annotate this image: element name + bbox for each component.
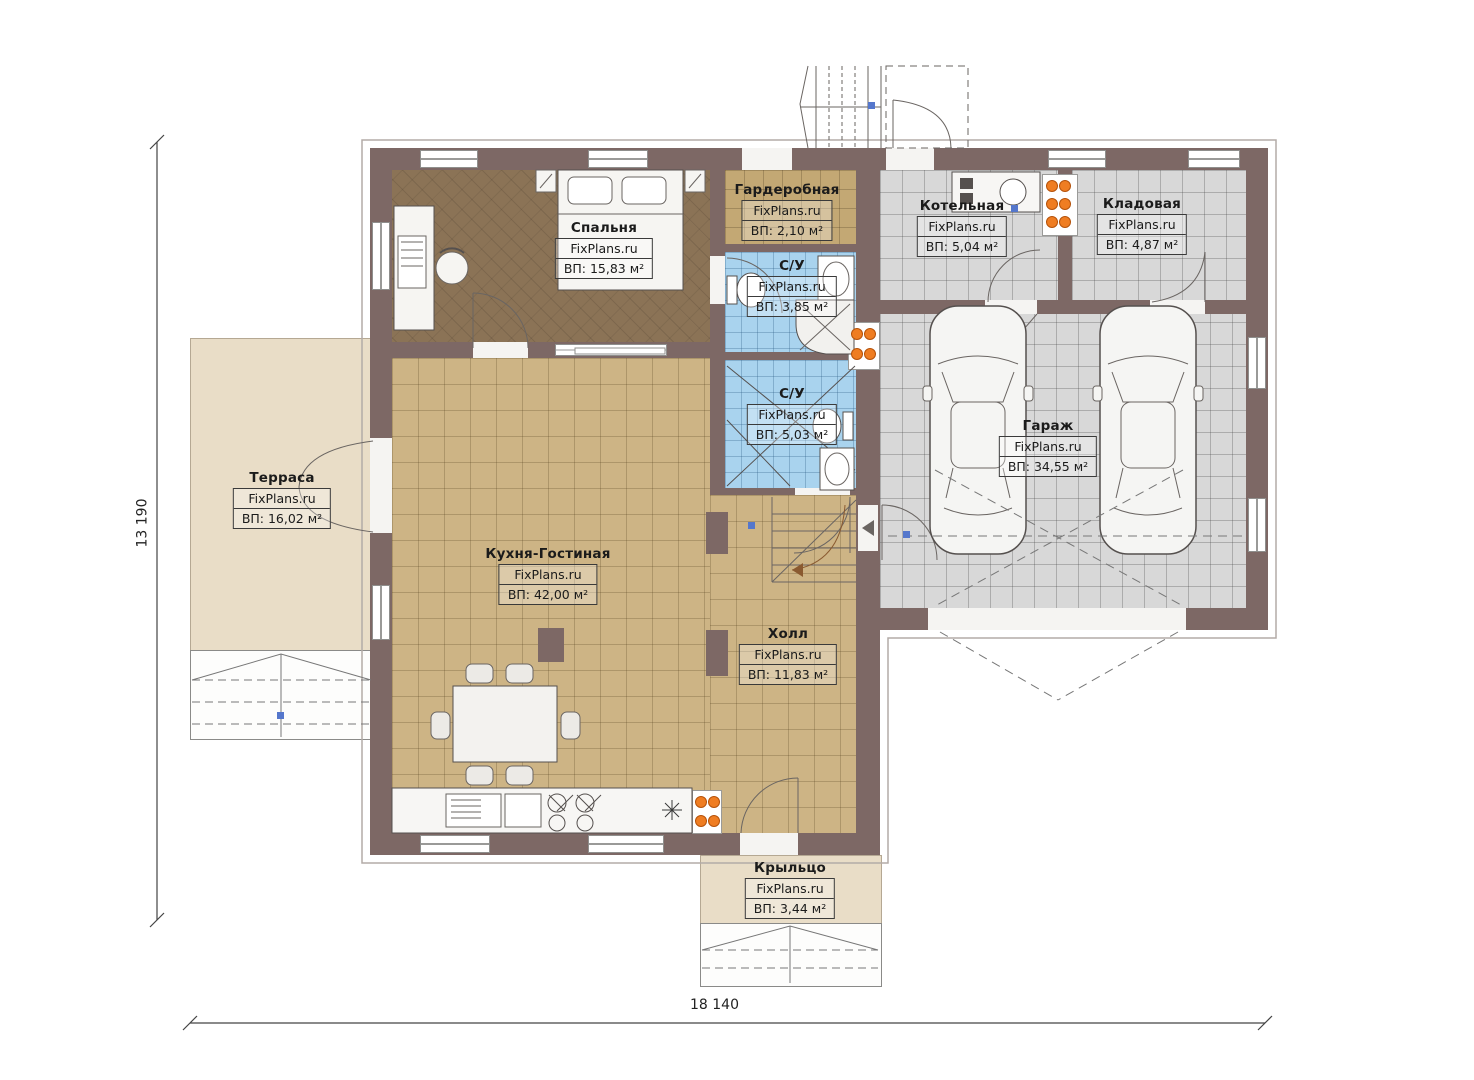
door-entry-top [886,148,934,170]
room-area: ВП: 11,83 м² [740,665,836,684]
dimension-width: 18 140 [690,997,739,1013]
watermark: FixPlans.ru [500,565,596,585]
window-kitchen-bottom-2 [588,835,664,853]
watermark: FixPlans.ru [746,879,834,899]
marker-entry [868,102,875,109]
wall-corridor [710,170,725,495]
door-terrace [370,438,392,533]
window-bedroom-top-1 [420,150,478,168]
column-hall-2 [706,630,728,676]
watermark: FixPlans.ru [748,277,836,297]
sliding-door-bedroom [555,344,667,356]
room-label-kitchen-living: Кухня-Гостиная FixPlans.ruВП: 42,00 м² [485,546,610,605]
window-bedroom-top-2 [588,150,648,168]
room-area: ВП: 5,04 м² [918,237,1006,256]
room-floor-bedroom [392,170,710,358]
dimension-height: 13 190 [135,499,151,548]
room-name: Крыльцо [745,860,835,876]
room-area: ВП: 16,02 м² [234,509,330,528]
door-wardrobe-top [742,148,792,170]
column-kitchen [538,628,564,662]
room-label-boiler: Котельная FixPlans.ruВП: 5,04 м² [917,198,1007,257]
room-name: Терраса [233,470,331,486]
room-name: Котельная [917,198,1007,214]
room-name: Гардеробная [734,182,839,198]
radiator-niche-boiler [1042,174,1078,236]
room-area: ВП: 42,00 м² [500,585,596,604]
watermark: FixPlans.ru [1000,437,1096,457]
watermark: FixPlans.ru [748,405,836,425]
room-area: ВП: 3,85 м² [748,297,836,316]
room-label-wardrobe: Гардеробная FixPlans.ruВП: 2,10 м² [734,182,839,241]
room-area: ВП: 3,44 м² [746,899,834,918]
door-bedroom [473,342,528,358]
room-label-bedroom: Спальня FixPlans.ruВП: 15,83 м² [555,220,653,279]
room-label-bathroom-2: С/У FixPlans.ruВП: 5,03 м² [747,386,837,445]
radiator-niche-bath [848,322,880,370]
room-name: Кухня-Гостиная [485,546,610,562]
porch-steps [700,923,882,987]
terrace-steps [190,650,375,740]
door-storage [1150,300,1205,314]
top-entrance-stairs [800,66,968,148]
door-boiler [985,300,1037,314]
door-porch [740,833,798,855]
room-area: ВП: 34,55 м² [1000,457,1096,476]
room-name: С/У [747,386,837,402]
room-name: С/У [747,258,837,274]
garage-door-opening [928,608,1186,630]
room-label-garage: Гараж FixPlans.ruВП: 34,55 м² [999,418,1097,477]
room-label-storage: Кладовая FixPlans.ruВП: 4,87 м² [1097,196,1187,255]
wall-bath1-bath2 [725,352,856,360]
door-bathroom-1 [710,256,725,304]
room-name: Кладовая [1097,196,1187,212]
room-area: ВП: 15,83 м² [556,259,652,278]
watermark: FixPlans.ru [740,645,836,665]
radiator-niche-kitchen [692,790,722,834]
wall-exterior-top [370,148,1268,170]
room-label-bathroom-1: С/У FixPlans.ruВП: 3,85 м² [747,258,837,317]
window-kitchen-bottom-1 [420,835,490,853]
watermark: FixPlans.ru [556,239,652,259]
floor-plan: Спальня FixPlans.ruВП: 15,83 м² Гардероб… [0,0,1474,1080]
column-hall-1 [706,512,728,554]
room-area: ВП: 2,10 м² [743,221,831,240]
room-label-terrace: Терраса FixPlans.ruВП: 16,02 м² [233,470,331,529]
window-garage-right-1 [1248,337,1266,389]
watermark: FixPlans.ru [918,217,1006,237]
door-hall-garage [858,505,878,551]
wall-exterior-right [1246,148,1268,630]
wall-wardrobe-bath [725,244,856,252]
window-storage-top [1188,150,1240,168]
room-name: Спальня [555,220,653,236]
window-kitchen-left [372,585,390,640]
room-area: ВП: 4,87 м² [1098,235,1186,254]
room-name: Холл [739,626,837,642]
wall-house-garage-divider [856,148,880,855]
watermark: FixPlans.ru [743,201,831,221]
window-garage-right-2 [1248,498,1266,552]
window-bedroom-left [372,222,390,290]
room-label-hall: Холл FixPlans.ruВП: 11,83 м² [739,626,837,685]
room-label-porch: Крыльцо FixPlans.ruВП: 3,44 м² [745,860,835,919]
watermark: FixPlans.ru [1098,215,1186,235]
watermark: FixPlans.ru [234,489,330,509]
window-boiler-top [1048,150,1106,168]
room-area: ВП: 5,03 м² [748,425,836,444]
room-name: Гараж [999,418,1097,434]
door-bathroom-2 [795,488,850,495]
